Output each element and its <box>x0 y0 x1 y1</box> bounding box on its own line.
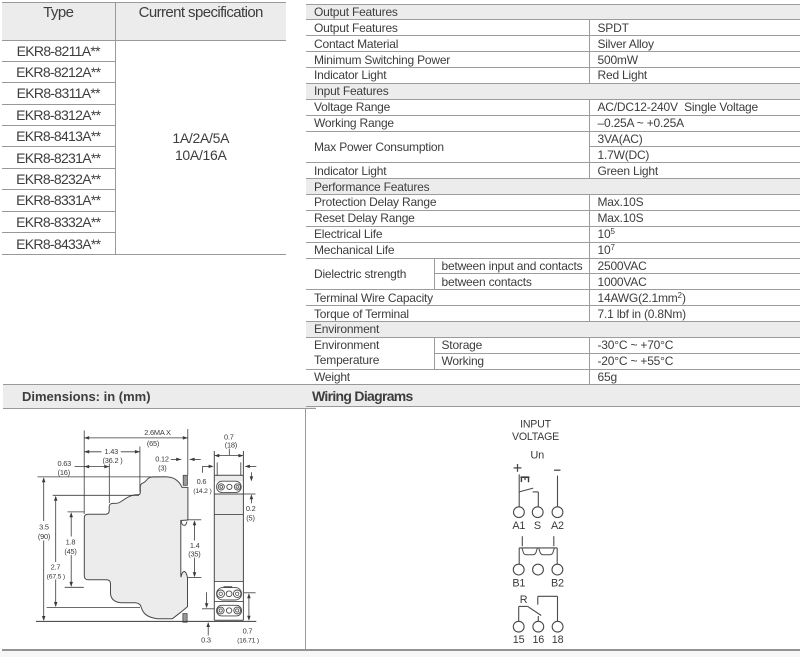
svg-text:(35): (35) <box>188 550 200 559</box>
svg-text:(67.5 ): (67.5 ) <box>47 574 65 581</box>
svg-text:B2: B2 <box>551 577 564 589</box>
svg-text:0.12: 0.12 <box>155 455 169 464</box>
svg-text:VOLTAGE: VOLTAGE <box>512 431 559 443</box>
svg-text:2.6MA X: 2.6MA X <box>144 428 171 437</box>
svg-text:S: S <box>534 520 541 532</box>
svg-text:1.8: 1.8 <box>66 537 76 546</box>
svg-text:A2: A2 <box>551 520 564 532</box>
svg-text:1.43: 1.43 <box>105 447 119 456</box>
svg-text:0.7: 0.7 <box>243 627 253 636</box>
svg-text:INPUT: INPUT <box>520 419 552 431</box>
svg-text:(5): (5) <box>246 513 254 522</box>
svg-text:(90): (90) <box>38 532 50 541</box>
svg-text:15: 15 <box>513 634 525 646</box>
svg-text:(18): (18) <box>225 441 237 450</box>
svg-text:(65): (65) <box>147 439 159 448</box>
svg-text:3.5: 3.5 <box>39 523 49 532</box>
svg-text:R: R <box>520 594 528 606</box>
svg-text:0.63: 0.63 <box>58 459 72 468</box>
svg-text:(36.2 ): (36.2 ) <box>103 456 123 465</box>
svg-text:A1: A1 <box>512 520 525 532</box>
svg-text:(14.2 ): (14.2 ) <box>193 488 211 495</box>
svg-text:(16): (16) <box>58 468 70 477</box>
svg-text:Un: Un <box>530 449 544 461</box>
svg-text:(3): (3) <box>158 464 166 473</box>
svg-text:B1: B1 <box>512 577 525 589</box>
svg-text:16: 16 <box>532 634 544 646</box>
svg-text:(45): (45) <box>64 547 76 556</box>
svg-text:18: 18 <box>552 634 564 646</box>
svg-text:2.7: 2.7 <box>51 563 61 572</box>
svg-text:0.6: 0.6 <box>197 477 207 486</box>
svg-text:(16.71 ): (16.71 ) <box>237 637 259 644</box>
svg-text:0.3: 0.3 <box>201 635 211 644</box>
svg-text:0.2: 0.2 <box>246 504 256 513</box>
